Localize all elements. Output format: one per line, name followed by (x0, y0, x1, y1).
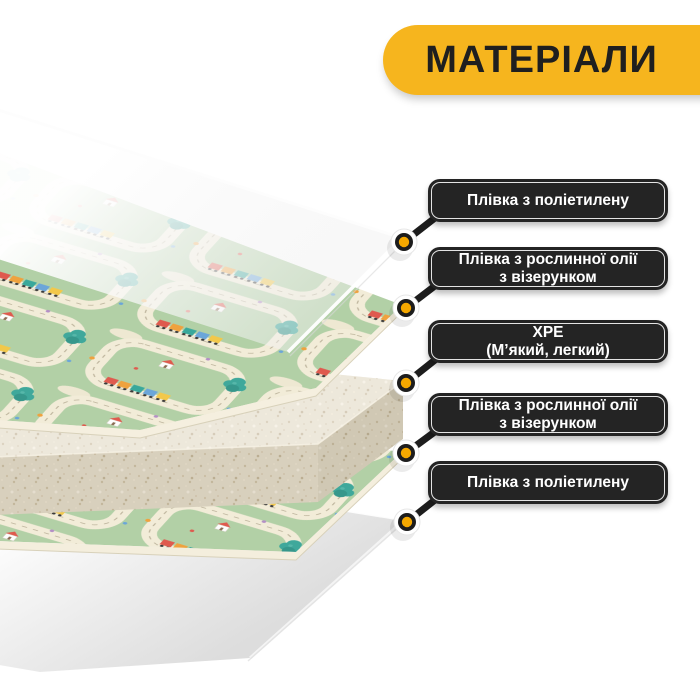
callout-label-line1: Плівка з рослинної олії (459, 251, 638, 269)
layer-xpe-foam-core (0, 338, 403, 516)
callout-label-line1: Плівка з поліетилену (467, 192, 629, 210)
connector-dot (390, 509, 420, 541)
callout-label-line1: XPE (532, 324, 563, 342)
callout-patterned-film-bottom: Плівка з рослинної олії з візерунком (428, 393, 668, 436)
callout-label-line1: Плівка з рослинної олії (459, 397, 638, 415)
connector-dot (387, 229, 417, 261)
callout-patterned-film-top: Плівка з рослинної олії з візерунком (428, 247, 668, 290)
materials-infographic: МАТЕРІАЛИ Плівка з поліетилену Плівка з … (0, 0, 700, 700)
connector-dot (389, 370, 419, 402)
callout-label-line2: з візерунком (499, 415, 597, 433)
callout-xpe-core: XPE (М’який, легкий) (428, 320, 668, 363)
layer-patterned-film-bottom (0, 396, 402, 560)
callout-polyethylene-film-bottom: Плівка з поліетилену (428, 461, 668, 504)
layer-polyethylene-film-bottom (0, 450, 404, 672)
connector-dot (389, 440, 419, 472)
callout-polyethylene-film-top: Плівка з поліетилену (428, 179, 668, 222)
materials-banner: МАТЕРІАЛИ (383, 25, 700, 95)
layer-polyethylene-film-top (0, 101, 404, 356)
connector-dot (389, 295, 419, 327)
banner-title: МАТЕРІАЛИ (383, 39, 700, 82)
callout-label-line2: з візерунком (499, 269, 597, 287)
callout-label-line2: (М’який, легкий) (486, 342, 610, 360)
callout-label-line1: Плівка з поліетилену (467, 474, 629, 492)
layer-patterned-film-top (0, 142, 402, 438)
connector-dots (387, 229, 420, 541)
